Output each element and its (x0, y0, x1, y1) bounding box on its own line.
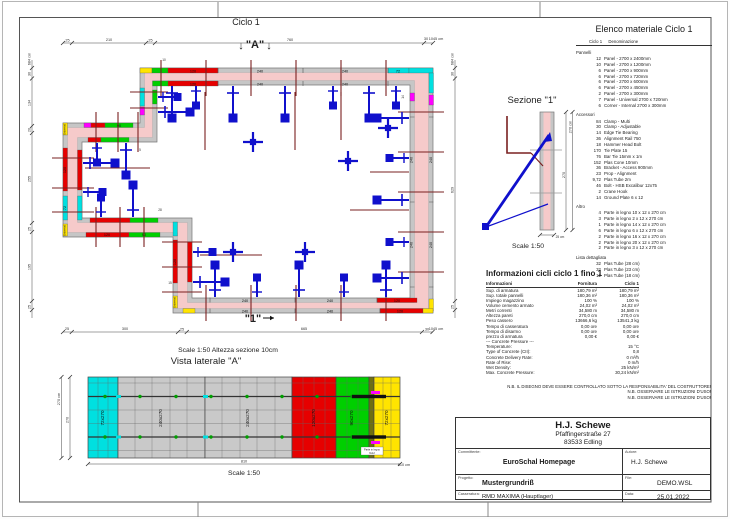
svg-text:240: 240 (327, 299, 333, 303)
svg-text:810 cm: 810 cm (398, 463, 410, 467)
material-group-pannelli: Pannelli 12Panel - 2700 x 2400mm10Panel … (576, 50, 712, 109)
title-block: H.J. Schewe Pfaffingerstraße 27 83533 Ed… (455, 417, 711, 500)
svg-text:25: 25 (28, 227, 32, 231)
material-item: 2Parte in legno 3 x 12 x 270 cm (576, 245, 712, 251)
svg-text:760: 760 (287, 38, 293, 42)
svg-text:629: 629 (451, 187, 455, 193)
svg-text:684 cm: 684 cm (28, 53, 32, 65)
svg-text:25 cm: 25 cm (556, 235, 565, 239)
field-committente: Committente: EuroSchal Homepage (456, 449, 623, 474)
svg-text:240x270: 240x270 (245, 409, 250, 427)
svg-text:25: 25 (65, 39, 69, 43)
svg-text:255: 255 (28, 176, 32, 182)
svg-text:240x270: 240x270 (158, 409, 163, 427)
svg-text:134: 134 (28, 100, 32, 106)
material-list: Elenco materiale Ciclo 1 Ciclo 1 Denomin… (576, 24, 712, 279)
svg-text:30: 30 (424, 37, 428, 41)
svg-text:Parte in legno: Parte in legno (364, 448, 381, 452)
svg-text:665: 665 (301, 327, 307, 331)
drawing-sheet: Ciclo 1 ↓ "A" ↓ (0, 0, 730, 519)
material-list-header: Ciclo 1 Denominazione (576, 39, 712, 46)
svg-text:120: 120 (63, 167, 67, 173)
svg-text:810: 810 (241, 460, 247, 464)
company-name: H.J. Schewe (456, 418, 710, 431)
svg-text:270 cm: 270 cm (569, 121, 573, 133)
svg-text:120x270: 120x270 (311, 409, 316, 427)
svg-text:240: 240 (342, 83, 348, 87)
wood-part-label: Parte in legno 6x12 (361, 447, 383, 455)
elevation-title: Vista laterale "A" (171, 356, 241, 367)
svg-text:210: 210 (106, 38, 112, 42)
company-city: 83533 Edling (456, 439, 710, 447)
svg-text:90x270: 90x270 (349, 410, 354, 426)
svg-text:72x270: 72x270 (384, 410, 389, 426)
svg-text:14: 14 (401, 95, 405, 99)
nb-notes: N.B. IL DISEGNO DEVE ESSERE CONTROLLATO … (468, 384, 711, 400)
svg-text:25: 25 (180, 328, 184, 332)
company-street: Pfaffingerstraße 27 (456, 431, 710, 439)
tie-rod (352, 435, 386, 438)
field-autore: Autore: H.J. Schewe (623, 449, 710, 474)
title-block-company: H.J. Schewe Pfaffingerstraße 27 83533 Ed… (456, 418, 710, 449)
svg-text:30: 30 (451, 72, 455, 76)
svg-text:240: 240 (327, 310, 333, 314)
svg-text:270: 270 (66, 417, 70, 423)
cycle-info-table: Informazioni cicli ciclo 1 fino 1 Inform… (486, 269, 639, 375)
info-row: Max. Concrete Pressure:30,24 kN/m² (486, 370, 639, 375)
material-item: 6Corner - Internal 2700 x 300mm (576, 103, 712, 109)
section-a-marker: "A" (246, 39, 264, 51)
svg-text:240: 240 (429, 157, 433, 163)
svg-text:25: 25 (451, 305, 455, 309)
svg-text:240: 240 (409, 242, 413, 248)
svg-text:240: 240 (242, 299, 248, 303)
material-list-title: Elenco materiale Ciclo 1 (576, 24, 712, 34)
field-casseratura: Casseratura: RMD MAXIMA (Hauptlager) (456, 491, 623, 502)
svg-text:72: 72 (396, 70, 400, 74)
svg-text:6x12: 6x12 (369, 451, 375, 455)
svg-text:10: 10 (162, 58, 166, 62)
section-a-arrow-left-icon: ↓ (238, 40, 244, 52)
svg-text:120: 120 (104, 233, 110, 237)
material-group-altro: Altro 4Parte in legno 10 x 12 x 270 cm3P… (576, 204, 712, 251)
svg-text:Universal: Universal (63, 225, 67, 236)
svg-text:684 cm: 684 cm (451, 53, 455, 65)
svg-text:120: 120 (190, 70, 196, 74)
svg-text:28: 28 (158, 208, 162, 212)
svg-text:270: 270 (562, 172, 566, 178)
field-data: Data: 25.01.2022 (623, 491, 710, 502)
svg-text:195: 195 (28, 264, 32, 270)
col-name: Denominazione (608, 39, 638, 44)
svg-text:120: 120 (173, 259, 177, 265)
svg-text:"1": "1" (245, 313, 262, 325)
field-progetto: Progetto: Mustergrundriß (456, 475, 623, 490)
svg-text:72x270: 72x270 (100, 410, 105, 426)
svg-text:120: 120 (397, 310, 403, 314)
section-a-arrow-right-icon: ↓ (266, 40, 272, 52)
section-scale: Scale 1:50 (512, 243, 544, 250)
svg-text:240: 240 (429, 242, 433, 248)
svg-text:Universal: Universal (173, 297, 177, 308)
svg-text:300: 300 (122, 327, 128, 331)
svg-text:240: 240 (409, 157, 413, 163)
svg-text:Universal: Universal (63, 124, 67, 135)
nb-note: N.B. OSSERVARE LE ISTRUZIONI D'USO! (468, 395, 711, 400)
svg-text:15: 15 (168, 281, 172, 285)
svg-text:120: 120 (394, 299, 400, 303)
svg-text:25: 25 (28, 305, 32, 309)
tie-rod (352, 395, 386, 398)
svg-text:25: 25 (65, 327, 69, 331)
svg-text:72: 72 (63, 206, 67, 210)
svg-text:5: 5 (139, 148, 141, 152)
col-qty: Ciclo 1 (589, 39, 602, 44)
info-table-title: Informazioni cicli ciclo 1 fino 1 (486, 269, 639, 278)
section-title: Sezione "1" (508, 95, 557, 106)
material-item: 14Ground Plate 6 x 12 (576, 195, 712, 201)
field-file: File: DEMO.WSL (623, 475, 710, 490)
svg-text:240: 240 (257, 70, 263, 74)
elevation-scale: Scale 1:50 (228, 470, 260, 477)
svg-text:25: 25 (148, 39, 152, 43)
svg-text:20: 20 (28, 128, 32, 132)
svg-text:240: 240 (342, 70, 348, 74)
material-group-accessori: Accessori 84Clamp - Multi30Clamp - Adjus… (576, 112, 712, 200)
svg-text:270 cm: 270 cm (57, 393, 61, 405)
plan-scale-note: Scale 1:50 Altezza sezione 10cm (178, 347, 278, 354)
plan-title: Ciclo 1 (232, 17, 260, 27)
svg-text:1045 cm: 1045 cm (429, 327, 444, 331)
svg-text:1045 cm: 1045 cm (429, 37, 444, 41)
svg-text:240: 240 (257, 83, 263, 87)
svg-text:30: 30 (28, 72, 32, 76)
